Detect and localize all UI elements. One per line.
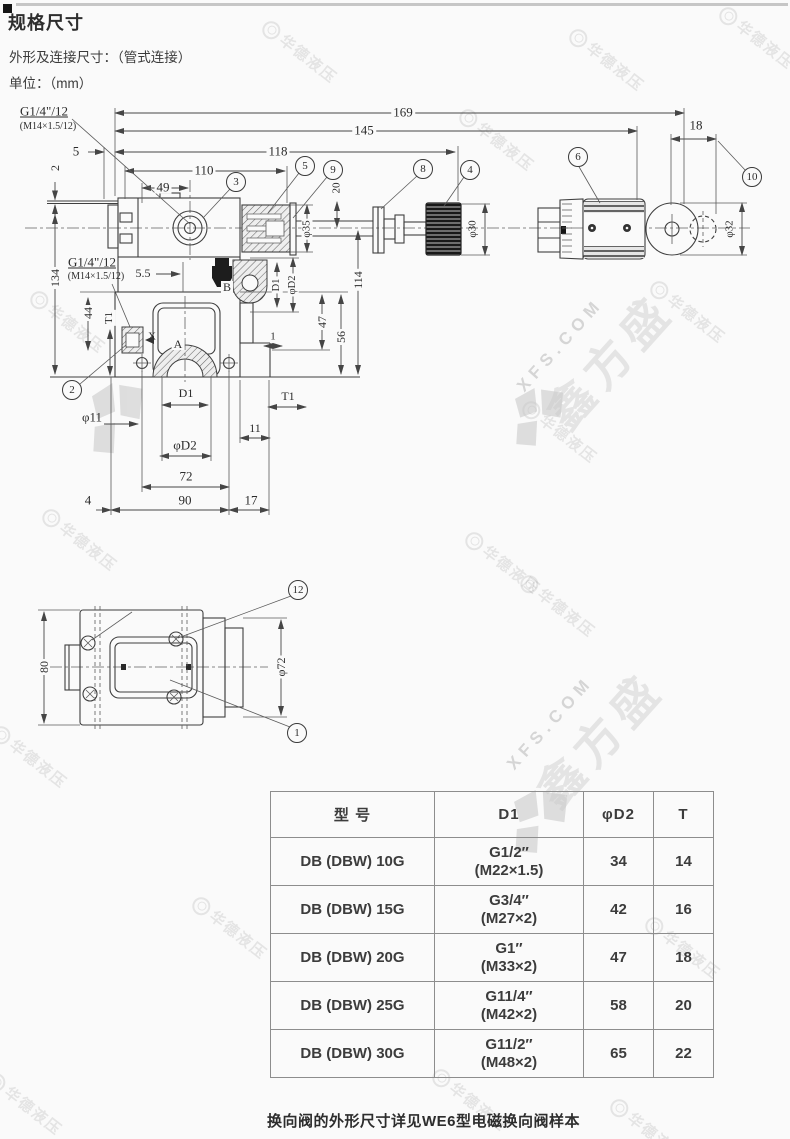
side-view (25, 180, 750, 260)
cell-d2: 34 (584, 838, 654, 886)
d1-metric: (M42×2) (435, 1006, 583, 1024)
cell-model: DB (DBW) 25G (271, 982, 435, 1030)
d1-thread: G3/4″ (435, 892, 583, 910)
page-title: 规格尺寸 (8, 9, 84, 35)
cell-model: DB (DBW) 30G (271, 1030, 435, 1078)
table-header-row: 型 号 D1 φD2 T (271, 792, 714, 838)
table-row: DB (DBW) 25G G11/4″ (M42×2) 58 20 (271, 982, 714, 1030)
cell-t: 14 (654, 838, 714, 886)
cell-d2: 47 (584, 934, 654, 982)
col-header-d1: D1 (435, 792, 584, 838)
cell-d2: 58 (584, 982, 654, 1030)
table-row: DB (DBW) 20G G1″ (M33×2) 47 18 (271, 934, 714, 982)
d1-metric: (M22×1.5) (435, 862, 583, 880)
col-header-model: 型 号 (271, 792, 435, 838)
cell-t: 22 (654, 1030, 714, 1078)
cell-d1: G3/4″ (M27×2) (435, 886, 584, 934)
d1-thread: G1/2″ (435, 844, 583, 862)
spec-table: 型 号 D1 φD2 T DB (DBW) 10G G1/2″ (M22×1.5… (270, 791, 714, 1078)
d1-thread: G11/4″ (435, 988, 583, 1006)
cell-d1: G11/2″ (M48×2) (435, 1030, 584, 1078)
d1-metric: (M48×2) (435, 1054, 583, 1072)
watermark-xfs-shapes (92, 383, 567, 853)
d1-thread: G11/2″ (435, 1036, 583, 1054)
d1-metric: (M33×2) (435, 958, 583, 976)
unit-label: 单位：（mm） (9, 72, 92, 92)
cell-d2: 65 (584, 1030, 654, 1078)
cell-model: DB (DBW) 20G (271, 934, 435, 982)
cell-t: 16 (654, 886, 714, 934)
spec-page: 华德液压 华德液压 华德液压 华德液压 (0, 0, 790, 1139)
col-header-d2: φD2 (584, 792, 654, 838)
cell-d1: G11/4″ (M42×2) (435, 982, 584, 1030)
cell-d2: 42 (584, 886, 654, 934)
table-row: DB (DBW) 10G G1/2″ (M22×1.5) 34 14 (271, 838, 714, 886)
page-subtitle: 外形及连接尺寸：（管式连接） (9, 46, 191, 66)
col-header-t: T (654, 792, 714, 838)
front-view (50, 257, 360, 382)
cell-model: DB (DBW) 15G (271, 886, 435, 934)
d1-thread: G1″ (435, 940, 583, 958)
table-row: DB (DBW) 15G G3/4″ (M27×2) 42 16 (271, 886, 714, 934)
footer-note: 换向阀的外形尺寸详见WE6型电磁换向阀样本 (267, 1110, 580, 1131)
d1-metric: (M27×2) (435, 910, 583, 928)
cell-t: 20 (654, 982, 714, 1030)
cell-d1: G1″ (M33×2) (435, 934, 584, 982)
cell-d1: G1/2″ (M22×1.5) (435, 838, 584, 886)
cell-model: DB (DBW) 10G (271, 838, 435, 886)
table-row: DB (DBW) 30G G11/2″ (M48×2) 65 22 (271, 1030, 714, 1078)
top-rule (16, 3, 788, 6)
cell-t: 18 (654, 934, 714, 982)
bottom-view (38, 596, 291, 729)
